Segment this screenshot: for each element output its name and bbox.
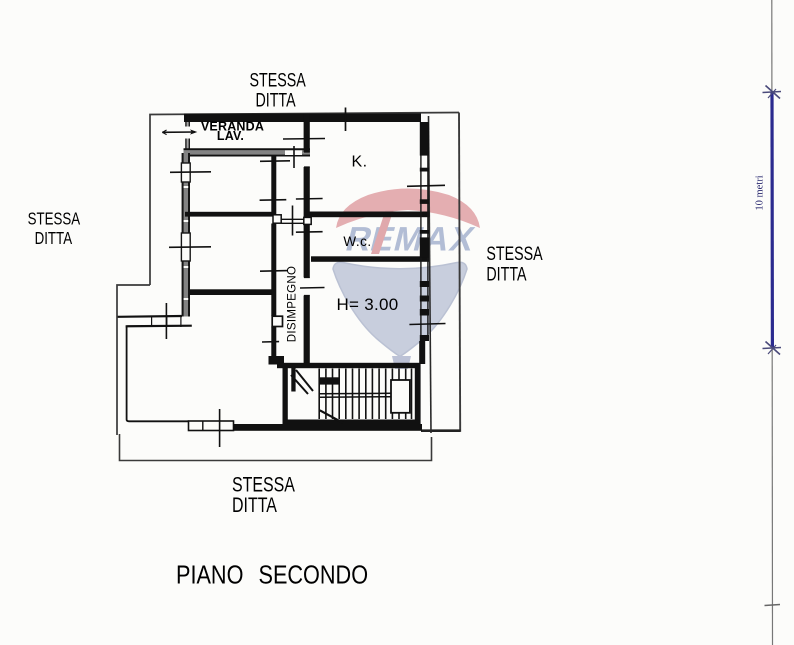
svg-text:STESSA: STESSA <box>28 210 81 229</box>
svg-text:SECONDO: SECONDO <box>259 562 369 590</box>
svg-text:MAX: MAX <box>390 221 479 258</box>
svg-text:LAV.: LAV. <box>217 129 244 143</box>
svg-text:K.: K. <box>351 154 367 171</box>
svg-text:H= 3.00: H= 3.00 <box>336 295 398 314</box>
svg-text:DITTA: DITTA <box>486 264 527 285</box>
svg-text:STESSA: STESSA <box>250 70 307 91</box>
svg-text:DITTA: DITTA <box>256 90 297 111</box>
svg-text:STESSA: STESSA <box>486 243 543 264</box>
svg-text:DISIMPEGNO: DISIMPEGNO <box>286 266 298 342</box>
svg-text:PIANO: PIANO <box>176 562 243 590</box>
svg-text:DITTA: DITTA <box>35 229 73 248</box>
svg-text:W.c.: W.c. <box>343 234 371 249</box>
svg-text:10 metri: 10 metri <box>755 175 766 210</box>
svg-text:DITTA: DITTA <box>232 493 277 517</box>
